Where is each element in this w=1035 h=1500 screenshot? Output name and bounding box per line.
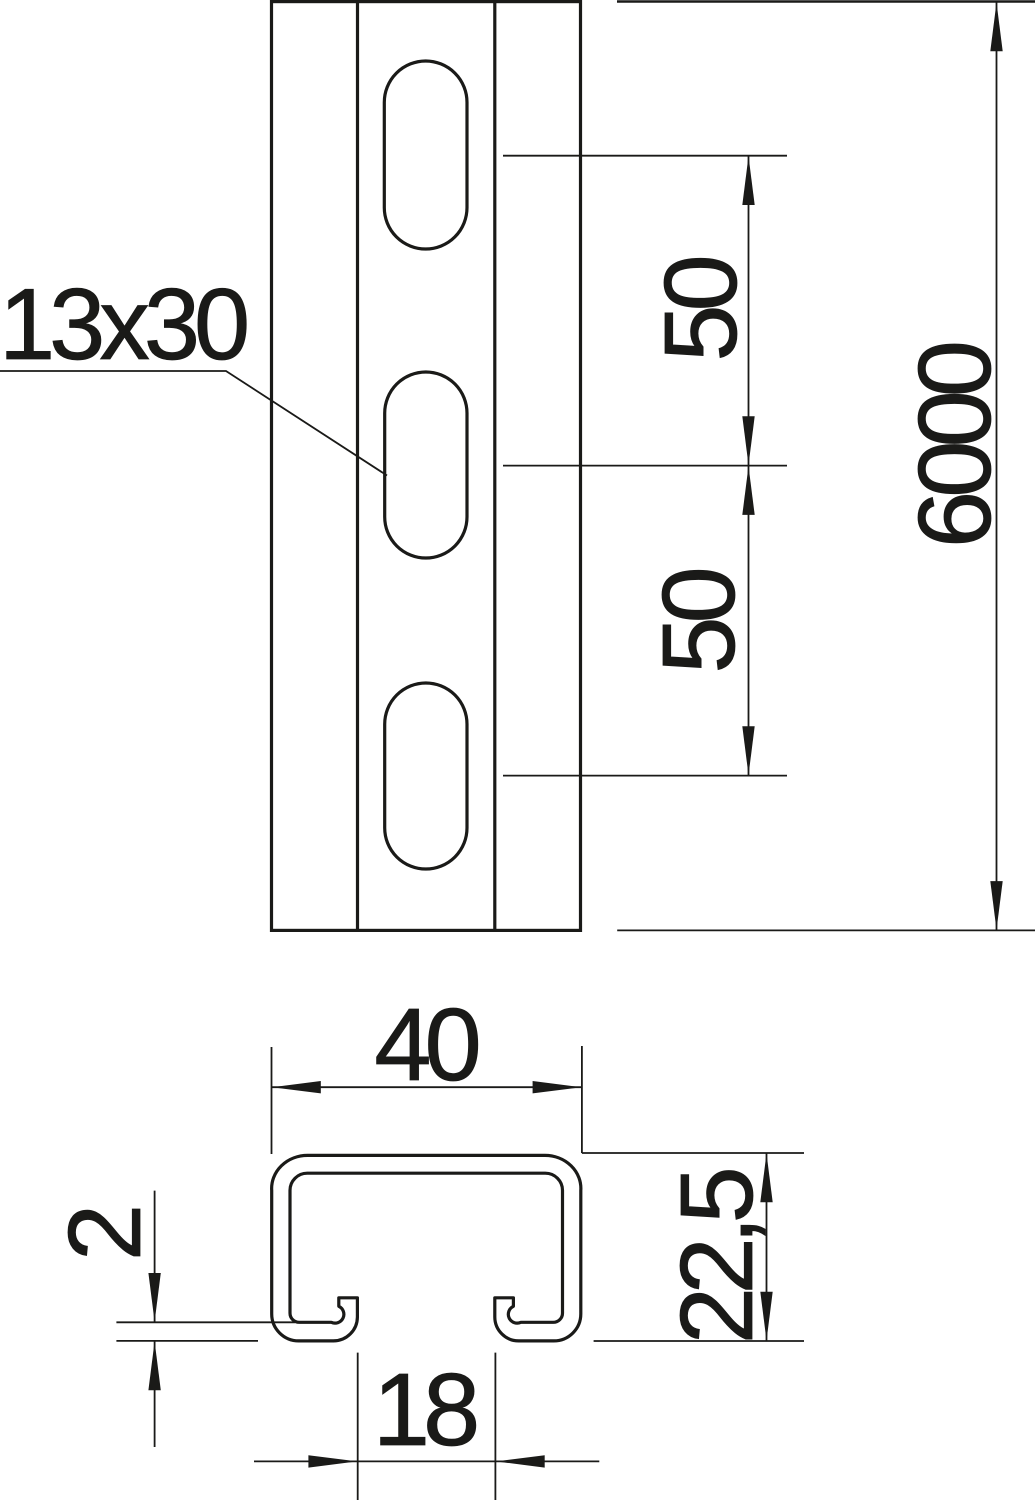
svg-text:22,5: 22,5 [659,1171,774,1345]
svg-text:2: 2 [47,1208,162,1261]
svg-text:50: 50 [641,570,756,674]
svg-text:50: 50 [643,258,758,362]
svg-text:18: 18 [373,1352,476,1467]
svg-text:13x30: 13x30 [0,269,247,381]
svg-text:6000: 6000 [897,343,1012,548]
svg-text:40: 40 [374,987,478,1102]
